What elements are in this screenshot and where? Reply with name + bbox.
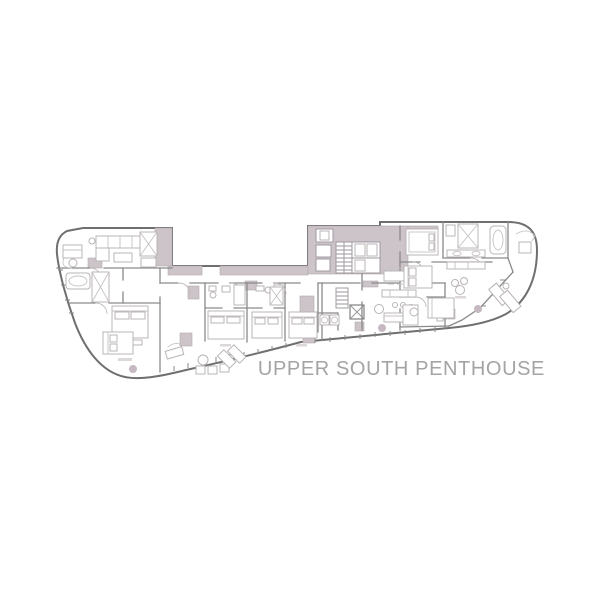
floorplan-drawing: UPPER SOUTH PENTHOUSE [0, 0, 600, 600]
floorplan-page: UPPER SOUTH PENTHOUSE [0, 0, 600, 600]
plan-title: UPPER SOUTH PENTHOUSE [258, 358, 545, 380]
